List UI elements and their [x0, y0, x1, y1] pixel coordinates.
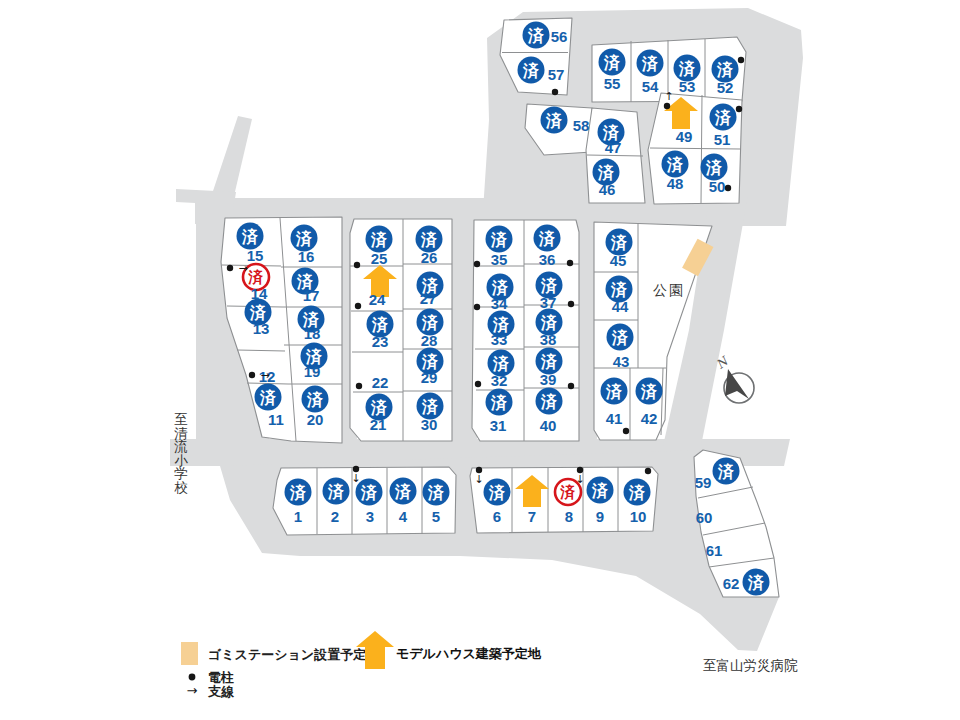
- lot-number: 5: [432, 508, 440, 525]
- lot-number: 61: [706, 542, 723, 559]
- lot-61: 61: [706, 542, 723, 559]
- sold-badge-text: 済: [394, 482, 411, 501]
- lot-number: 4: [399, 508, 408, 525]
- sold-badge-text: 済: [522, 61, 539, 80]
- lot-number: 35: [491, 251, 508, 268]
- sold-badge-text: 済: [603, 53, 620, 72]
- utility-pole: [356, 383, 362, 389]
- pole-dot-icon: [356, 383, 362, 389]
- lot-number: 47: [605, 139, 622, 156]
- guy-wire-arrow-icon: ↓: [474, 473, 483, 486]
- utility-pole: [725, 185, 731, 191]
- sold-badge-text: 済: [628, 483, 645, 502]
- pole-dot-icon: [725, 185, 731, 191]
- sold-badge-text: 済: [371, 315, 388, 334]
- pole-dot-icon: [474, 304, 480, 310]
- pole-dot-icon: [552, 89, 558, 95]
- pole-dot-icon: [645, 468, 651, 474]
- sold-badge-text: 済: [666, 155, 683, 174]
- lot-number: 53: [679, 78, 696, 95]
- sold-badge-text: 済: [360, 483, 377, 502]
- sold-badge-text: 済: [370, 398, 387, 417]
- lot-number: 20: [307, 411, 324, 428]
- utility-pole: [552, 89, 558, 95]
- lot-number: 46: [599, 181, 616, 198]
- sold-badge-text: 済: [678, 59, 695, 78]
- lot-22: 22: [372, 374, 389, 391]
- lot-number: 19: [304, 363, 321, 380]
- lot-number: 30: [421, 416, 438, 433]
- lot-number: 7: [528, 508, 536, 525]
- lot-number: 42: [641, 410, 658, 427]
- compass: N: [714, 353, 754, 403]
- lot-number: 38: [540, 331, 557, 348]
- sold-badge-text: 済: [306, 390, 323, 409]
- pole-legend-icon: [189, 674, 196, 681]
- subdivision-map-page: 済1済2済3済4済5済67済8済9済10済1112済13済14済15済16済17…: [0, 0, 960, 720]
- sold-badge-text: 済: [540, 313, 557, 332]
- sold-badge-text: 済: [717, 462, 734, 481]
- lot-60: 60: [696, 509, 713, 526]
- guy-wire-arrow-icon: ↓: [575, 473, 584, 486]
- sold-badge-text: 済: [705, 158, 722, 177]
- pole-dot-icon: [227, 265, 233, 271]
- model-house-legend-label: モデルハウス建築予定地: [396, 646, 542, 661]
- gomi-station-legend-label: ゴミステーション設置予定: [208, 647, 366, 662]
- lot-number: 58: [573, 117, 590, 134]
- park-label: 公園: [653, 282, 685, 298]
- lot-number: 43: [613, 353, 630, 370]
- sold-badge-text: 済: [327, 482, 344, 501]
- gomi-station-legend-icon: [181, 642, 198, 665]
- to-school-label: 至清流小学校: [174, 411, 188, 495]
- lot-number: 22: [372, 374, 389, 391]
- lot-number: 41: [606, 410, 623, 427]
- pole-dot-icon: [354, 262, 360, 268]
- pole-dot-icon: [738, 57, 744, 63]
- lot-number: 17: [303, 287, 320, 304]
- lot-number: 21: [370, 416, 387, 433]
- sold-badge-text: 済: [545, 111, 562, 130]
- utility-pole: [736, 106, 742, 112]
- utility-pole: [475, 381, 481, 387]
- pole-dot-icon: [568, 301, 574, 307]
- lot-number: 26: [421, 249, 438, 266]
- sold-badge-text: 済: [241, 227, 258, 246]
- lot-number: 36: [539, 251, 556, 268]
- sold-badge-text: 済: [421, 352, 438, 371]
- sold-badge-red-text: 済: [248, 268, 264, 286]
- utility-pole: [474, 304, 480, 310]
- lot-number: 56: [551, 28, 568, 45]
- lot-number: 55: [604, 75, 621, 92]
- sold-badge-text: 済: [492, 354, 509, 373]
- sold-badge-text: 済: [540, 352, 557, 371]
- sold-badge-red-text: 済: [560, 483, 576, 501]
- guy-wire-arrow-icon: →: [238, 262, 247, 275]
- lot-number: 44: [612, 298, 629, 315]
- sold-badge-text: 済: [714, 108, 731, 127]
- utility-pole: [355, 303, 361, 309]
- sold-badge-text: 済: [427, 483, 444, 502]
- sold-badge-text: 済: [490, 230, 507, 249]
- sold-badge-text: 済: [490, 393, 507, 412]
- pole-dot-icon: [664, 103, 670, 109]
- sold-badge-text: 済: [641, 54, 658, 73]
- lot-number: 15: [247, 247, 264, 264]
- sold-badge-text: 済: [540, 392, 557, 411]
- lot-number: 27: [420, 290, 437, 307]
- lot-number: 23: [372, 333, 389, 350]
- sold-badge-text: 済: [716, 60, 733, 79]
- sold-badge-text: 済: [597, 163, 614, 182]
- guy-wire-arrow-icon: ↑: [664, 90, 673, 103]
- guy-wire-arrow-icon: ↓: [351, 472, 360, 485]
- lot-number: 24: [369, 291, 386, 308]
- site-map: 済1済2済3済4済5済67済8済9済10済1112済13済14済15済16済17…: [0, 0, 960, 720]
- lot-number: 10: [630, 508, 647, 525]
- lot-number: 62: [723, 575, 740, 592]
- pole-dot-icon: [474, 261, 480, 267]
- pole-dot-icon: [567, 260, 573, 266]
- lot-number: 2: [331, 508, 339, 525]
- utility-pole: [354, 262, 360, 268]
- lot-number: 34: [491, 295, 508, 312]
- lot-number: 32: [491, 372, 508, 389]
- lot-number: 54: [642, 78, 659, 95]
- pole-dot-icon: [355, 303, 361, 309]
- lot-number: 1: [294, 508, 302, 525]
- pole-dot-icon: [249, 372, 255, 378]
- sold-badge-text: 済: [421, 397, 438, 416]
- sold-badge-text: 済: [259, 388, 276, 407]
- lot-number: 14: [251, 285, 268, 302]
- sold-badge-text: 済: [488, 483, 505, 502]
- lot-number: 52: [717, 79, 734, 96]
- sold-badge-text: 済: [591, 481, 608, 500]
- utility-pole: [645, 468, 651, 474]
- lot-number: 11: [268, 411, 284, 428]
- sold-badge-text: 済: [289, 483, 306, 502]
- lot-number: 60: [696, 509, 713, 526]
- wire-legend-label: 支線: [207, 684, 235, 699]
- sold-badge-text: 済: [610, 233, 627, 252]
- wire-legend-icon: →: [187, 683, 198, 698]
- pole-dot-icon: [568, 383, 574, 389]
- to-hospital-label: 至富山労災病院: [703, 657, 798, 673]
- lot-number: 48: [667, 175, 684, 192]
- lot-number: 18: [304, 325, 321, 342]
- pole-legend-label: 電柱: [208, 670, 234, 685]
- lot-number: 8: [565, 508, 573, 525]
- lot-number: 16: [298, 248, 315, 265]
- lot-number: 51: [714, 131, 731, 148]
- utility-pole: [474, 261, 480, 267]
- guy-wire-arrow-icon: →: [260, 369, 269, 382]
- lot-number: 45: [610, 252, 627, 269]
- lot-number: 40: [540, 417, 557, 434]
- sold-badge-text: 済: [491, 278, 508, 297]
- lot-number: 59: [695, 474, 712, 491]
- utility-pole: [738, 57, 744, 63]
- utility-pole: [567, 260, 573, 266]
- sold-badge-text: 済: [611, 328, 628, 347]
- pole-dot-icon: [736, 106, 742, 112]
- lot-number: 6: [493, 508, 501, 525]
- sold-badge-text: 済: [747, 573, 764, 592]
- utility-pole: [568, 301, 574, 307]
- lot-number: 33: [491, 331, 508, 348]
- road-top-diagonal: [212, 116, 252, 203]
- pole-dot-icon: [623, 428, 629, 434]
- sold-badge-text: 済: [295, 229, 312, 248]
- lot-number: 57: [548, 66, 565, 83]
- lot-number: 31: [490, 417, 507, 434]
- sold-badge-text: 済: [420, 230, 437, 249]
- lot-number: 49: [676, 128, 693, 145]
- sold-badge-text: 済: [540, 276, 557, 295]
- lot-number: 37: [540, 294, 557, 311]
- sold-badge-text: 済: [370, 230, 387, 249]
- lot-number: 28: [421, 332, 438, 349]
- lot-number: 3: [366, 508, 374, 525]
- sold-badge-text: 済: [538, 229, 555, 248]
- sold-badge-text: 済: [249, 303, 266, 322]
- utility-pole: [623, 428, 629, 434]
- legend: ゴミステーション設置予定 モデルハウス建築予定地 電柱 → 支線: [181, 631, 542, 699]
- lot-number: 9: [596, 508, 604, 525]
- sold-badge-text: 済: [527, 26, 544, 45]
- sold-badge-text: 済: [421, 313, 438, 332]
- sold-badge-text: 済: [610, 280, 627, 299]
- sold-badge-text: 済: [605, 382, 622, 401]
- lot-number: 29: [421, 369, 438, 386]
- lot-number: 13: [253, 320, 270, 337]
- utility-pole: [568, 383, 574, 389]
- pole-dot-icon: [475, 381, 481, 387]
- lot-number: 25: [371, 250, 388, 267]
- lot-number: 39: [540, 371, 557, 388]
- lot-number: 50: [709, 178, 726, 195]
- sold-badge-text: 済: [640, 382, 657, 401]
